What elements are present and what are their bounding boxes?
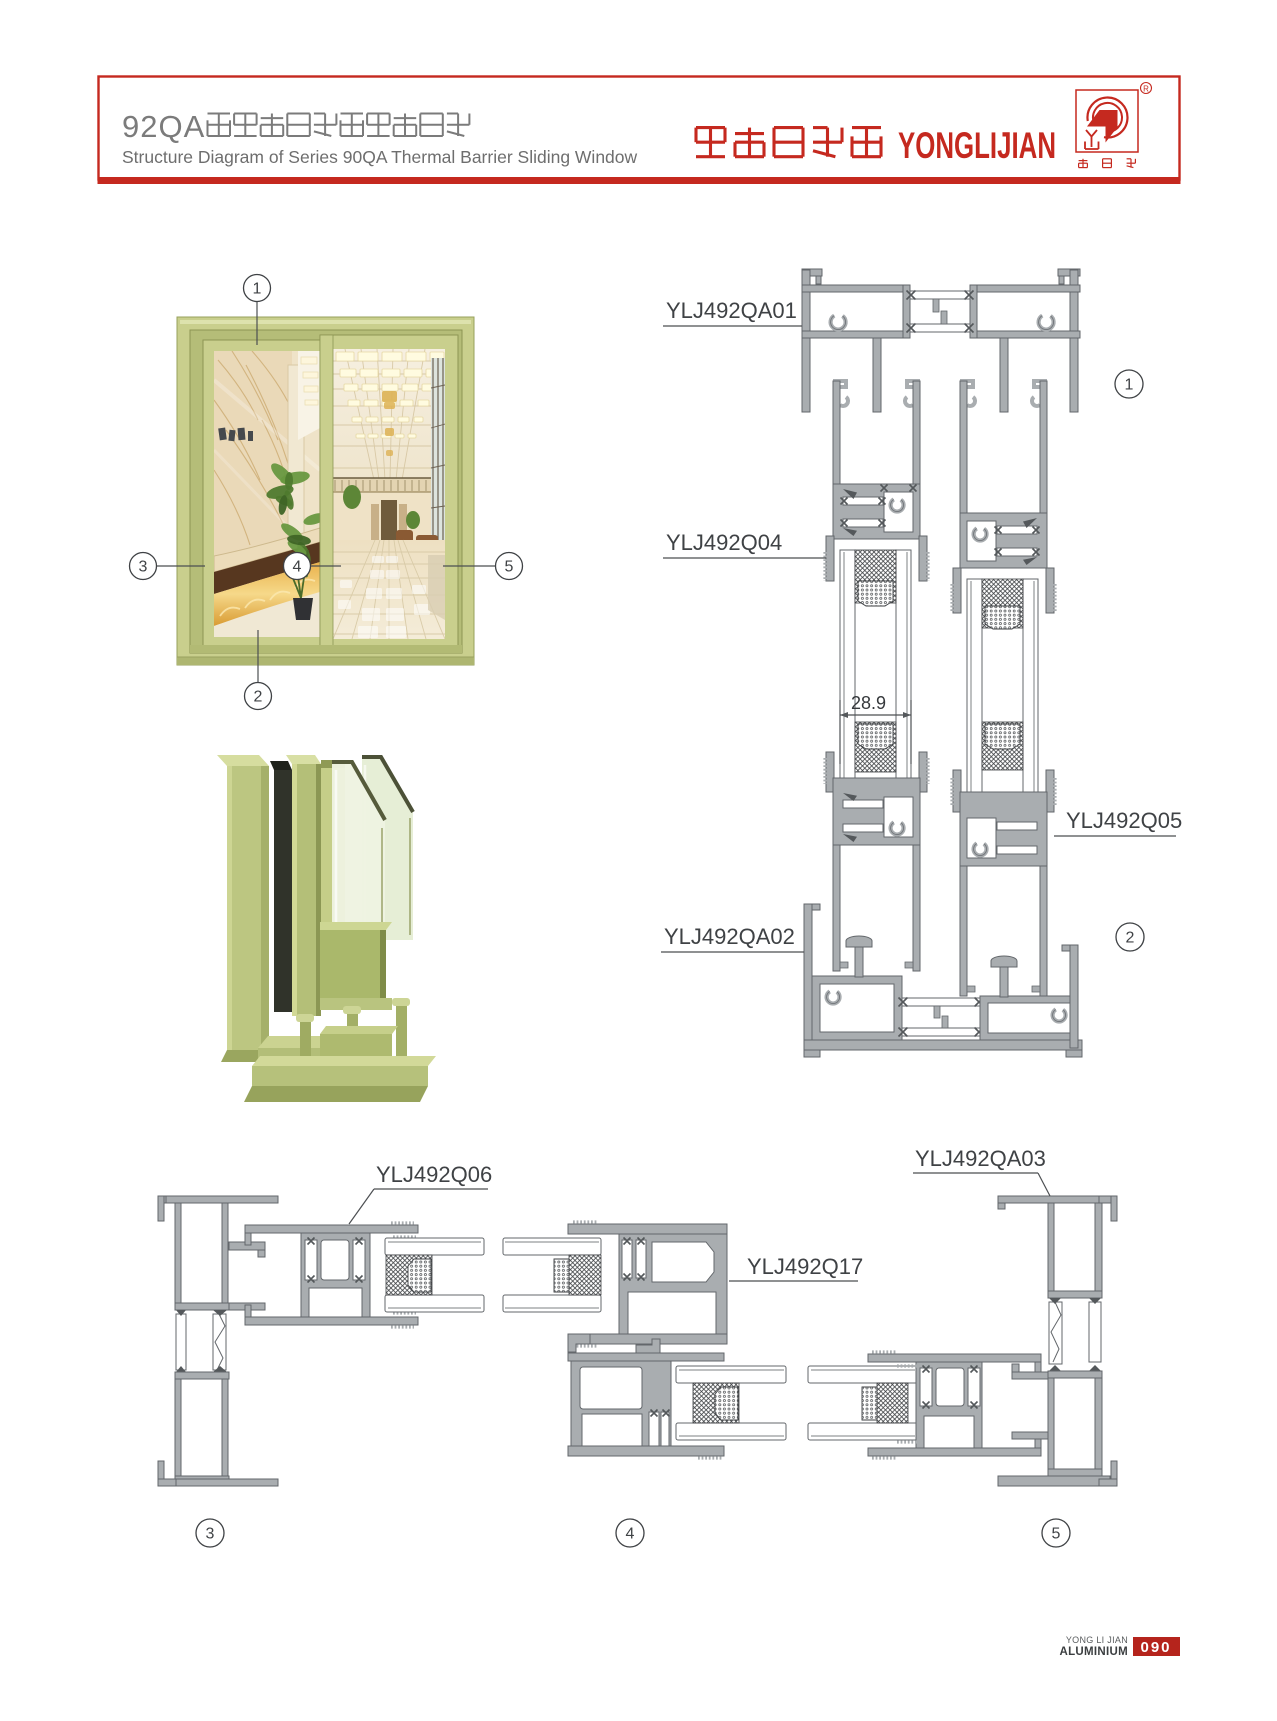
svg-text:YLJ492Q05: YLJ492Q05 bbox=[1066, 808, 1182, 833]
svg-text:5: 5 bbox=[1052, 1526, 1061, 1543]
svg-text:YLJ492QA01: YLJ492QA01 bbox=[666, 298, 797, 323]
svg-text:3: 3 bbox=[139, 559, 148, 576]
svg-text:4: 4 bbox=[626, 1526, 635, 1543]
svg-text:28.9: 28.9 bbox=[851, 693, 886, 713]
svg-text:92QA: 92QA bbox=[122, 109, 205, 144]
svg-text:Structure Diagram of Series 90: Structure Diagram of Series 90QA Thermal… bbox=[122, 147, 638, 167]
svg-text:3: 3 bbox=[206, 1526, 215, 1543]
svg-text:1: 1 bbox=[253, 281, 262, 298]
svg-text:YLJ492Q04: YLJ492Q04 bbox=[666, 530, 782, 555]
svg-text:1: 1 bbox=[1125, 377, 1134, 394]
svg-text:R: R bbox=[1143, 85, 1149, 94]
svg-text:YLJ492QA03: YLJ492QA03 bbox=[915, 1146, 1046, 1171]
svg-text:ALUMINIUM: ALUMINIUM bbox=[1060, 1646, 1129, 1658]
svg-text:YONG LI JIAN: YONG LI JIAN bbox=[1066, 1635, 1128, 1645]
svg-text:4: 4 bbox=[293, 559, 302, 576]
svg-text:090: 090 bbox=[1140, 1639, 1171, 1656]
svg-text:2: 2 bbox=[1126, 930, 1135, 947]
svg-text:5: 5 bbox=[505, 559, 514, 576]
svg-text:YONGLIJIAN: YONGLIJIAN bbox=[898, 125, 1056, 166]
svg-text:YLJ492Q06: YLJ492Q06 bbox=[376, 1162, 492, 1187]
svg-text:YLJ492QA02: YLJ492QA02 bbox=[664, 924, 795, 949]
svg-text:2: 2 bbox=[254, 689, 263, 706]
svg-text:YLJ492Q17: YLJ492Q17 bbox=[747, 1254, 863, 1279]
